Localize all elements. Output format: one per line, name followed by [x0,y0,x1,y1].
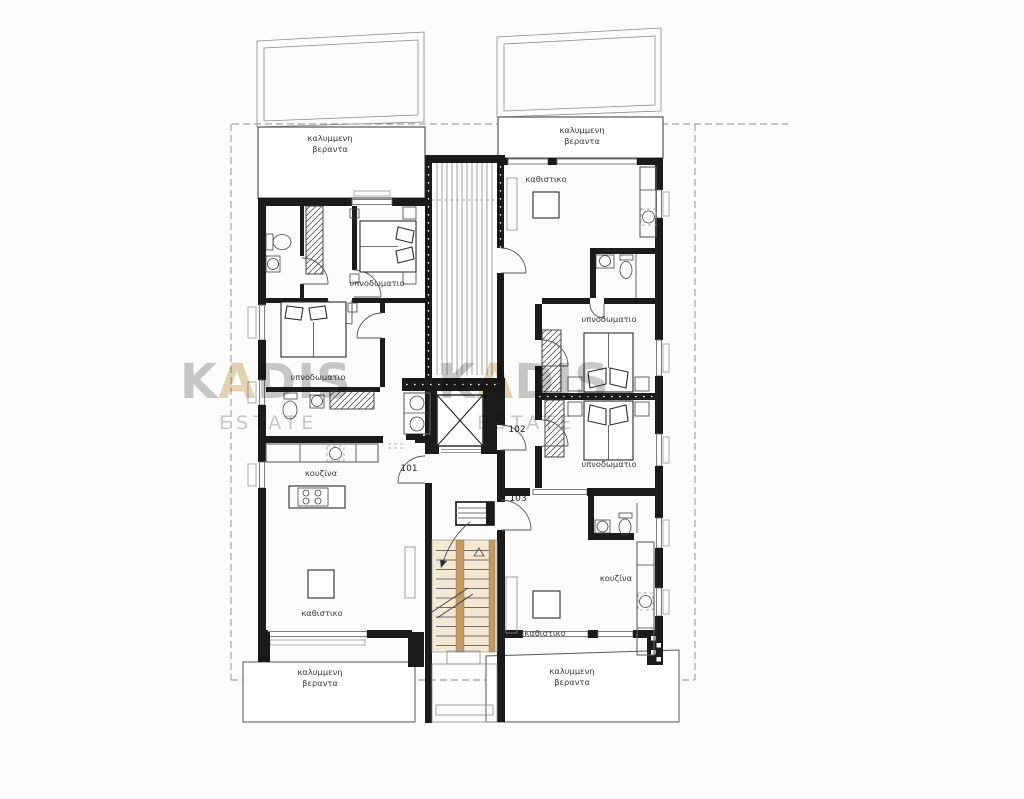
wall [415,436,425,443]
wall [498,158,508,165]
window [260,305,265,340]
nightstand [348,303,357,312]
watermark: KADIS ESTATE KADIS ESTATE [180,354,610,434]
wall [588,533,634,540]
room-label: υπνοδωματιο [349,278,404,288]
floor-plan-drawing: καλυμμενη βεραντα καλυμμενη βεραντα καλυ… [0,0,1024,799]
wall [367,630,412,638]
pillow [285,306,303,320]
wall [380,303,385,313]
wall [535,446,542,488]
stair-flight [432,540,497,652]
wall [590,254,596,298]
watermark-brand: KADIS [438,354,610,410]
wall [258,488,266,632]
window [260,462,265,488]
wall [425,155,505,163]
wall [655,376,663,434]
pillow [610,368,628,388]
window-sill [663,590,669,614]
window [533,490,587,495]
wall [425,391,437,446]
door-unit-103 [501,500,531,530]
wall [352,206,357,270]
nightstand [403,272,416,284]
unit-number-103: 103 [509,494,526,504]
window [657,340,662,376]
wall [258,198,266,305]
window [657,588,662,616]
room-label: καθιστικο [301,608,342,618]
wall [425,446,432,454]
open-veranda-top-left [257,32,424,127]
dryer-icon [410,417,424,431]
wall [481,446,497,454]
sink-icon [597,521,608,532]
room-label: καλυμμενη [307,133,352,143]
veranda-outline-inner [264,40,418,121]
wall [258,436,383,443]
apt103-living-room: καθιστικο [506,577,566,638]
wall [590,248,663,254]
room-label: βεραντα [312,144,348,154]
apt101-living-room: καθιστικο [301,547,415,618]
window-sill [663,344,669,372]
wall-checker [651,650,656,655]
unit-number-101: 101 [400,464,417,474]
window-sill [248,464,256,486]
wall [497,163,504,248]
pillow [309,306,327,320]
room-label: καθιστικο [525,174,566,184]
room-label: υπνοδωματιο [581,314,636,324]
wall [300,206,304,256]
apt102-living-room: καθιστικο [507,167,656,237]
room-label: βεραντα [554,677,590,687]
apt103-walls [505,496,663,665]
window [657,190,662,218]
wall [505,630,523,638]
window-sill [663,192,669,216]
toilet-tank [620,255,633,260]
room-label: καλυμμενη [549,666,594,676]
window [508,159,548,164]
wall [588,496,594,536]
sink-icon [330,448,342,460]
window-sill [248,307,256,338]
room-label: καλυμμενη [297,667,342,677]
landing-mat [436,705,493,715]
wall [258,198,352,206]
wall-checker [657,643,662,648]
room-label: κουζίνα [600,573,633,583]
wall [425,483,432,723]
door-bedroom2-101 [357,313,382,338]
open-veranda-top-right [497,28,661,117]
apt102-bathroom [590,254,636,318]
wall-checker [657,657,662,662]
window [352,200,392,205]
door-unit-102-upper [501,248,526,273]
stair-stringer [456,540,464,652]
apt103-bathroom [595,513,632,535]
watermark-brand: KADIS [180,354,352,410]
window-sill [354,191,390,196]
apartment-103: κουζίνα καθιστικο [505,496,663,665]
room-label: υπνοδωματιο [581,459,636,469]
window-sill [663,520,669,546]
stair-stringer [489,540,495,652]
covered-veranda-top-right: καλυμμενη βεραντα [498,117,663,158]
veranda-outline [257,32,424,127]
nightstand [403,207,416,219]
sink-icon [640,596,652,608]
stair-landing-step [447,651,480,664]
nightstand [635,377,649,391]
room-label: βεραντα [564,136,600,146]
wall [258,632,270,662]
sideboard [507,178,517,230]
covered-veranda-bottom-left: καλυμμενη βεραντα [243,662,415,722]
wall [486,502,494,525]
veranda-outline-inner [504,36,655,111]
window-sill [270,640,365,645]
toilet-tank [619,513,632,518]
watermark-subtitle: ESTATE [477,412,576,434]
nightstand [635,402,649,416]
room-label: βεραντα [302,678,338,688]
wall [497,530,505,722]
wardrobe [306,206,323,274]
window [657,434,662,466]
wall [300,284,304,298]
window [268,632,367,637]
pillow [610,405,628,425]
table [533,192,559,218]
toilet-icon [620,262,632,279]
wall [497,450,505,488]
wall [535,304,542,340]
wall [542,298,590,304]
sideboard [405,547,415,598]
wall [604,298,663,304]
apt101-bedroom-1: υπνοδωματιο [349,207,416,288]
kitchen-island [289,486,345,508]
wall [587,488,663,496]
room-label: κουζίνα [305,468,338,478]
floor-plan-page: καλυμμενη βεραντα καλυμμενη βεραντα καλυ… [0,0,1024,799]
toilet-tank [266,234,273,250]
wall [548,158,557,165]
wall [352,298,425,303]
washer-icon [410,396,424,410]
wall [408,632,424,667]
sink-icon [268,259,279,270]
wall [655,548,663,588]
kitchen-counter [640,167,656,237]
light-shaft [425,155,505,378]
room-label: καλυμμενη [559,125,604,135]
toilet-icon [619,519,631,535]
wall [588,630,598,638]
room-label: καθιστικο [524,628,565,638]
sink-icon [643,211,655,223]
table [533,591,560,618]
sink-box [596,255,614,268]
window-sill [663,437,669,463]
apt101-bathroom-top [266,234,291,272]
covered-veranda-top-left: καλυμμενη βεραντα [258,127,425,198]
window [598,632,633,637]
table [308,570,334,598]
apt102-bedroom-b: υπνοδωματιο [542,400,649,469]
toilet-icon [273,235,291,250]
sideboard [506,577,517,633]
watermark-subtitle: ESTATE [219,412,318,434]
door-threshold [491,437,496,441]
sink-icon [600,256,611,267]
veranda-outline [497,28,661,117]
kitchen-counter [266,444,378,462]
apt103-kitchen: κουζίνα [600,542,654,655]
wall-checker [651,636,656,641]
wall [380,338,385,387]
window [557,159,637,164]
apt101-kitchen: κουζίνα [266,444,378,508]
window [657,518,662,548]
wall [392,198,425,206]
